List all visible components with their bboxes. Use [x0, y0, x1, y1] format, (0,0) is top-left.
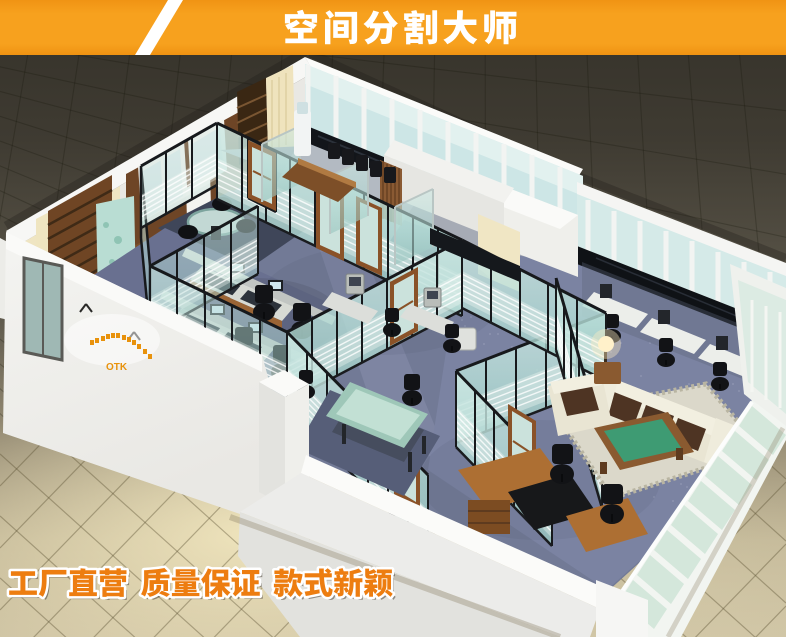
- svg-text:OTK: OTK: [106, 362, 128, 373]
